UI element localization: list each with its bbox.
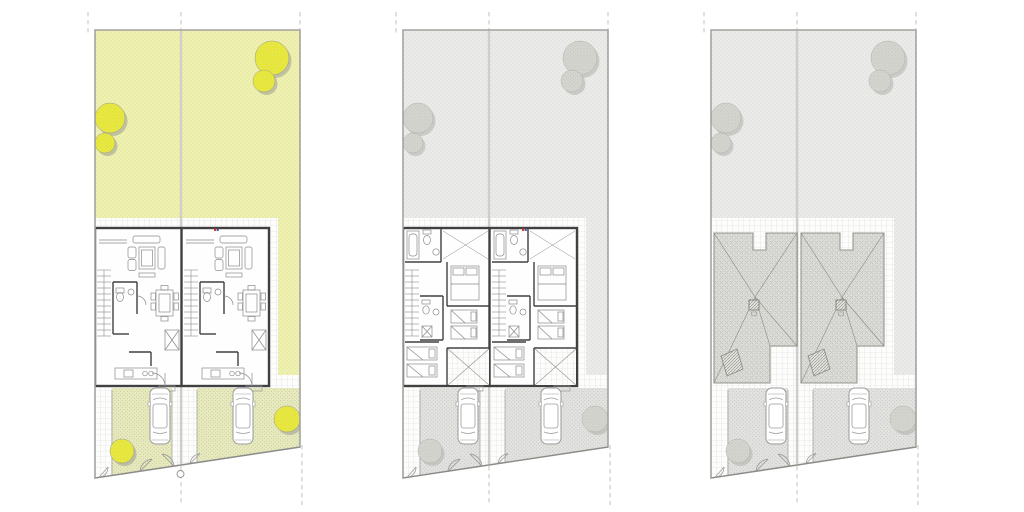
roof-site-plan xyxy=(694,0,944,512)
cad-marker-blue xyxy=(525,229,527,231)
site-plan-svg xyxy=(694,0,944,512)
level-marker xyxy=(177,471,184,478)
car-icon xyxy=(456,388,480,444)
car-icon xyxy=(847,388,871,444)
car-icon xyxy=(148,388,172,444)
site-plan-svg xyxy=(78,0,328,512)
car-icon xyxy=(231,388,255,444)
house-footprint xyxy=(95,228,269,391)
cad-marker-red xyxy=(214,229,216,231)
car-icon xyxy=(764,388,788,444)
cad-marker-blue xyxy=(217,229,219,231)
upper-floor-site-plan xyxy=(386,0,636,512)
garden-side-strip xyxy=(894,218,916,375)
ground-floor-site-plan xyxy=(78,0,328,512)
garden-side-strip xyxy=(586,218,608,375)
roof-skylight xyxy=(749,300,759,310)
site-plan-svg xyxy=(386,0,636,512)
roof-skylight xyxy=(836,300,846,310)
car-icon xyxy=(539,388,563,444)
garden-side-strip xyxy=(278,218,300,375)
site-plan-sheet xyxy=(0,0,1024,512)
house-footprint xyxy=(403,228,577,391)
cad-marker-red xyxy=(522,229,524,231)
